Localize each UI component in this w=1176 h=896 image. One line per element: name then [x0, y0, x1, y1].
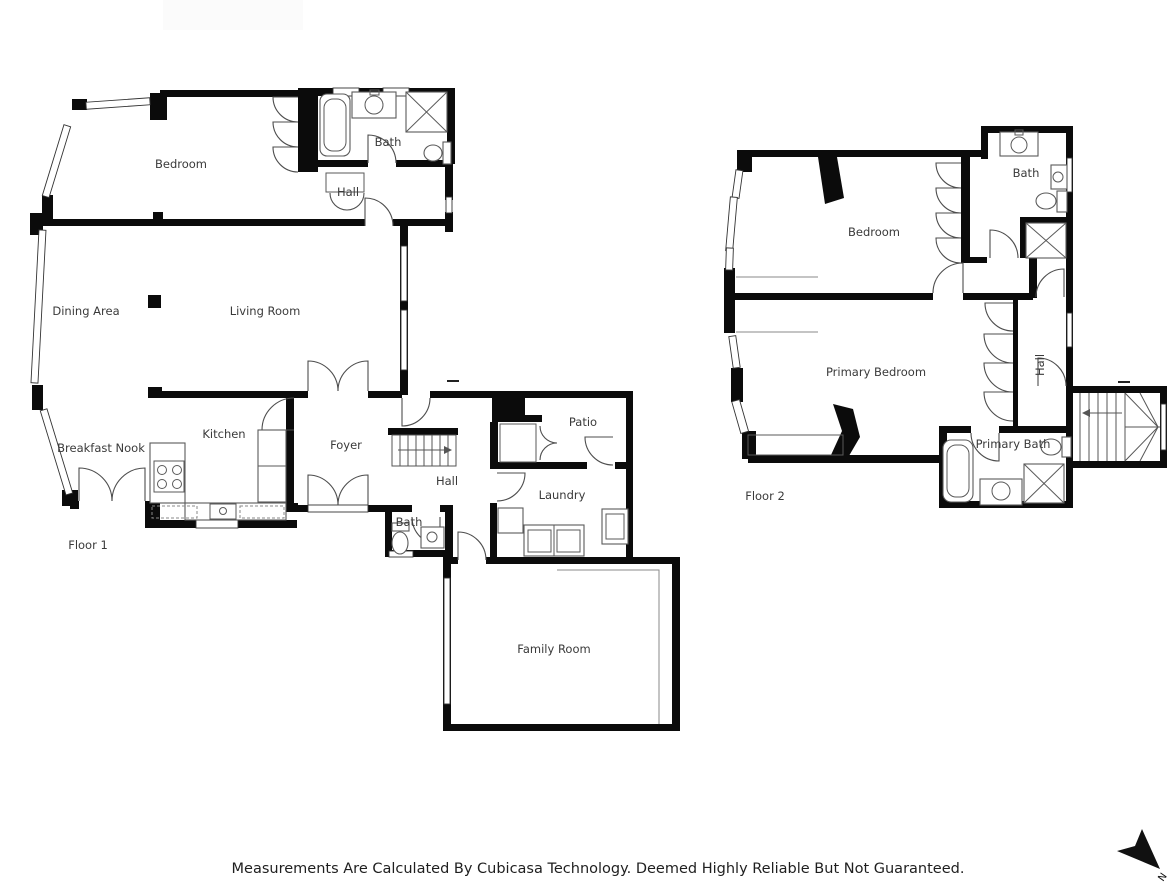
window	[86, 98, 150, 109]
room-label-bath-upper: Bath	[375, 135, 402, 149]
door-arc-patio	[585, 437, 613, 465]
room-label-hall-upper: Hall	[337, 185, 359, 199]
door-arc-primary-bedroom	[985, 303, 1013, 331]
stairs-down-arrow	[1082, 409, 1090, 417]
north-arrow: N	[1117, 829, 1170, 884]
door-arc-bedroom2	[933, 263, 963, 293]
window	[1161, 404, 1166, 450]
room-label-kitchen: Kitchen	[202, 427, 245, 441]
room-label-hall: Hall	[436, 474, 458, 488]
closet-door-bedroom	[273, 97, 298, 122]
window	[31, 230, 46, 383]
door-arc-hall2-top	[1036, 269, 1064, 297]
room-label-foyer: Foyer	[330, 438, 362, 452]
toilet-tank	[1062, 437, 1071, 457]
window	[732, 170, 743, 199]
room-label-bedroom: Bedroom	[155, 157, 207, 171]
room-label-laundry: Laundry	[539, 488, 586, 502]
closet-door-primary	[984, 392, 1013, 421]
window	[196, 520, 238, 528]
floor1-label: Floor 1	[68, 538, 108, 552]
window	[732, 400, 749, 434]
closet-door-primary	[984, 334, 1013, 363]
vanity-counter	[980, 479, 1022, 505]
window	[726, 248, 734, 270]
window	[401, 310, 407, 370]
floor2-stairs	[1080, 393, 1160, 461]
door-arc-hall-living	[365, 198, 393, 226]
floor1-stairs	[392, 435, 456, 466]
door-arc-family	[458, 532, 486, 560]
patio-closet	[500, 424, 536, 462]
room-label-patio: Patio	[569, 415, 597, 429]
toilet-icon	[392, 532, 408, 554]
laundry-cabinet	[498, 508, 523, 533]
window	[1067, 158, 1072, 192]
window	[729, 336, 740, 369]
toilet-icon	[1036, 193, 1056, 209]
room-label-primary-bedroom: Primary Bedroom	[826, 365, 926, 379]
disclaimer-text: Measurements Are Calculated By Cubicasa …	[232, 861, 965, 877]
closet-door-bedroom2	[936, 163, 961, 188]
room-label-bath2: Bath	[1013, 166, 1040, 180]
closet-door-primary	[984, 363, 1013, 392]
window	[446, 197, 452, 213]
door-arc-entry-right	[338, 475, 368, 505]
door-arc-foyer-living-left	[308, 361, 338, 391]
closet-door-bedroom2	[936, 188, 961, 213]
sink-icon	[421, 527, 444, 548]
closet-door-bedroom	[273, 122, 298, 147]
floorplan-page: Bedroom Bath Hall Dining Area Living Roo…	[0, 0, 1176, 896]
toilet-tank	[443, 142, 451, 164]
floor1-fixtures	[150, 90, 659, 724]
floor2-windows	[726, 158, 1166, 450]
closet-door-bedroom2	[936, 238, 961, 263]
door-arc-nook-right	[112, 468, 145, 501]
door-arc-bath2	[990, 230, 1018, 258]
floor2-label: Floor 2	[745, 489, 785, 503]
room-label-family: Family Room	[517, 642, 590, 656]
room-label-dining: Dining Area	[52, 304, 119, 318]
floor1-plan: Bedroom Bath Hall Dining Area Living Roo…	[30, 88, 680, 731]
window	[444, 578, 450, 704]
closet-bifold-patio	[540, 443, 557, 460]
door-arc-foyer-living-right	[338, 361, 368, 391]
door-arc-laundry	[497, 473, 525, 501]
door-arc-entry-left	[308, 475, 338, 505]
floorplan-canvas: Bedroom Bath Hall Dining Area Living Roo…	[0, 0, 1176, 896]
ledge	[748, 435, 843, 455]
closet-door-bedroom	[273, 147, 298, 172]
door-arc-hall	[402, 398, 430, 426]
room-label-bedroom2: Bedroom	[848, 225, 900, 239]
floor2-plan: Bath Bedroom Primary Bedroom Hall Primar…	[724, 126, 1167, 508]
toilet-tank	[1057, 191, 1067, 212]
north-label: N	[1156, 871, 1169, 883]
north-arrow-icon	[1117, 829, 1160, 869]
window	[1067, 313, 1072, 347]
vanity-counter	[1000, 132, 1038, 156]
room-label-breakfast: Breakfast Nook	[57, 441, 145, 455]
toilet-icon	[424, 145, 442, 161]
window	[401, 246, 407, 301]
closet-bifold-patio	[540, 426, 557, 443]
room-label-bath-small: Bath	[396, 515, 423, 529]
room-label-living: Living Room	[230, 304, 301, 318]
entry-threshold	[308, 505, 368, 512]
window	[42, 125, 70, 198]
room-label-primary-bath: Primary Bath	[976, 437, 1051, 451]
closet-door-bedroom2	[936, 213, 961, 238]
door-arc-nook-left	[79, 468, 112, 501]
window	[726, 197, 738, 251]
room-label-hall2: Hall	[1033, 354, 1047, 376]
watermark-block	[163, 0, 303, 30]
